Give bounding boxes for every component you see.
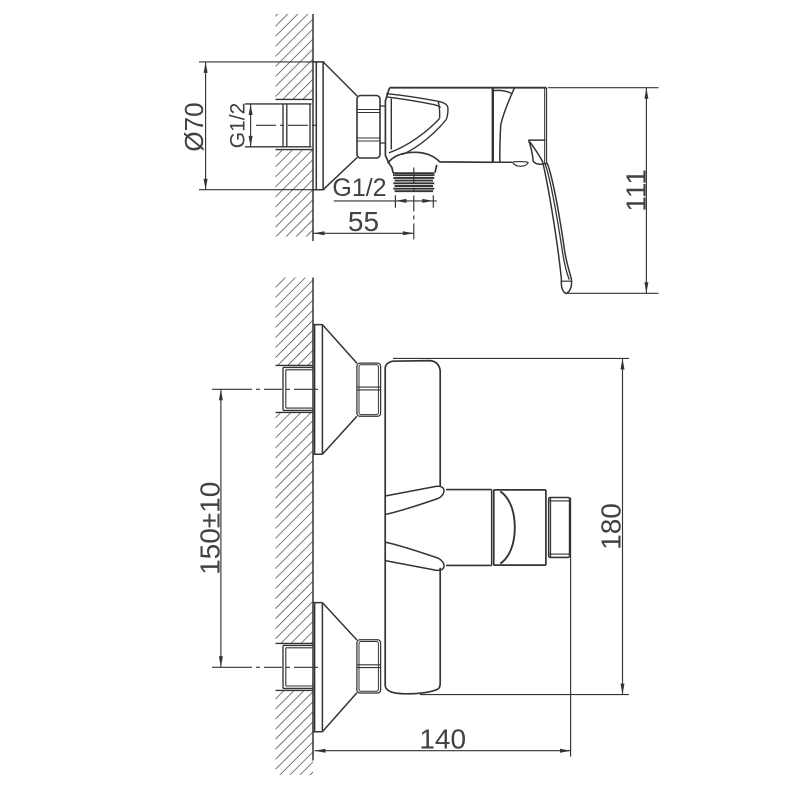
- svg-text:180: 180: [596, 503, 627, 550]
- svg-text:Ø70: Ø70: [179, 102, 209, 151]
- svg-text:140: 140: [419, 724, 466, 755]
- svg-text:G1/2: G1/2: [332, 174, 386, 202]
- svg-text:55: 55: [348, 206, 379, 237]
- svg-text:111: 111: [621, 169, 652, 212]
- svg-text:150±10: 150±10: [194, 482, 225, 575]
- svg-text:G1/2: G1/2: [227, 103, 250, 149]
